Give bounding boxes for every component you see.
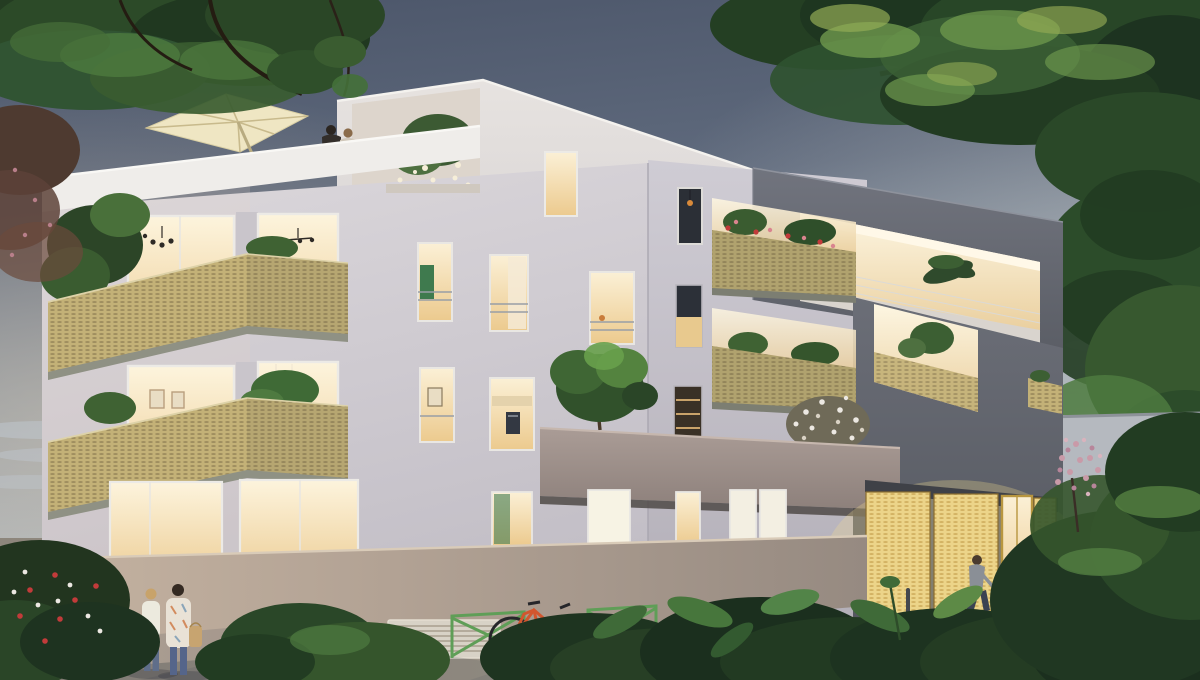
bookshelf-window <box>674 386 702 438</box>
window-curtain <box>490 255 528 331</box>
straw-bag <box>189 626 202 647</box>
architectural-rendering <box>0 0 1200 680</box>
gold-screen <box>866 492 930 614</box>
window-livingroom <box>590 272 634 344</box>
window-green <box>418 243 452 321</box>
window-kitchen <box>490 378 534 450</box>
window-bedroom <box>420 368 454 442</box>
